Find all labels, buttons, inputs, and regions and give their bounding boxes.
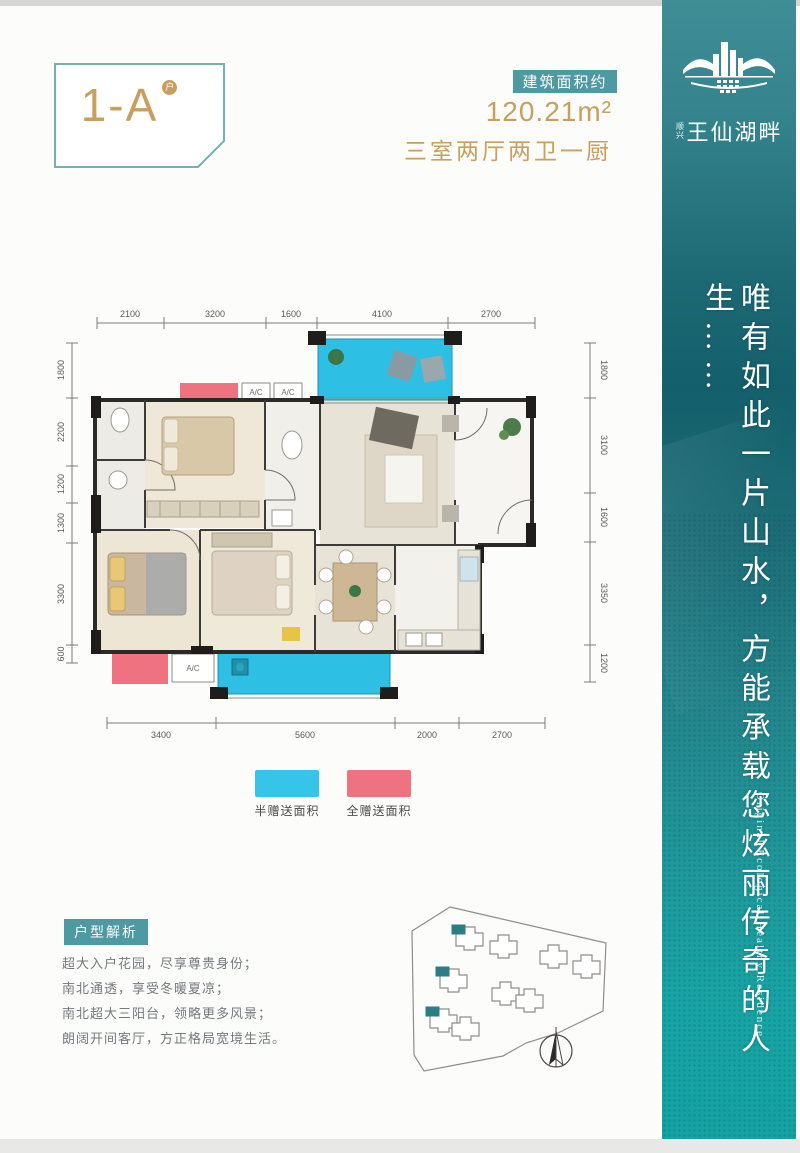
dim-label: 3100	[599, 435, 609, 455]
dim-label: 1600	[599, 507, 609, 527]
dim-label: 3400	[151, 730, 171, 740]
unit-label-text: 1-A	[81, 79, 159, 131]
floor-plan: 2100 3200 1600 4100 2700 3400 5600 2000 …	[50, 295, 615, 745]
dim-label: 1200	[599, 653, 609, 673]
dim-label: 3350	[599, 583, 609, 603]
dim-label: 1800	[599, 360, 609, 380]
dim-label: 2200	[56, 422, 66, 442]
brand-logo-icon	[677, 38, 781, 104]
area-value: 120.21m²	[312, 96, 612, 128]
dim-label: 3200	[205, 309, 225, 319]
sidebar-brand-panel: 顺兴 王仙湖畔 唯有如此一片山水，方能承载您炫丽传奇的人生…… Original…	[662, 0, 796, 1139]
site-plan	[408, 883, 623, 1088]
dim-label: 5600	[295, 730, 315, 740]
legend-swatch-pink	[347, 770, 411, 797]
dim-label: 2700	[492, 730, 512, 740]
north-compass-icon	[540, 1027, 572, 1067]
dim-label: 1300	[56, 513, 66, 533]
area-badge: 建筑面积约	[513, 70, 617, 93]
rooms-description: 三室两厅两卫一厨	[312, 132, 612, 166]
dim-label: 1600	[281, 309, 301, 319]
analysis-point: 朗阔开间客厅，方正格局宽境生活。	[62, 1026, 362, 1051]
dim-label: 2000	[417, 730, 437, 740]
brand-name: 王仙湖畔	[686, 115, 782, 147]
brand-prefix: 顺兴	[675, 122, 683, 140]
south-gift-area-full	[112, 652, 168, 684]
ac-label: A/C	[186, 664, 200, 673]
dim-label: 2100	[120, 309, 140, 319]
slogan-english-vertical: Original Ecological Healthy Residence	[754, 792, 766, 1122]
ac-label: A/C	[249, 388, 263, 397]
dim-label: 1800	[56, 360, 66, 380]
dim-label: 600	[56, 646, 66, 661]
analysis-points: 超大入户花园，尽享尊贵身份； 南北通透，享受冬暖夏凉； 南北超大三阳台，领略更多…	[62, 951, 362, 1051]
site-buildings	[426, 925, 600, 1040]
legend-swatch-cyan	[255, 770, 319, 797]
brand-block: 顺兴 王仙湖畔	[662, 38, 796, 147]
analysis-title-badge: 户型解析	[64, 919, 148, 945]
analysis-point: 南北通透，享受冬暖夏凉；	[62, 976, 362, 1001]
floorplan-poster: 1-A户 建筑面积约 120.21m² 三室两厅两卫一厨 2100 3200 1…	[0, 0, 800, 1153]
unit-mark-badge: 户	[162, 80, 177, 95]
ac-label: A/C	[281, 388, 295, 397]
dim-label: 3300	[56, 584, 66, 604]
dim-label: 1200	[56, 474, 66, 494]
analysis-point: 南北超大三阳台，领略更多风景；	[62, 1001, 362, 1026]
dim-label: 4100	[372, 309, 392, 319]
page-bottom-edge	[0, 1139, 800, 1153]
analysis-point: 超大入户花园，尽享尊贵身份；	[62, 951, 362, 976]
legend-item-full-gift: 全赠送面积	[324, 770, 434, 819]
unit-label: 1-A户	[54, 78, 204, 132]
legend-label: 全赠送面积	[324, 802, 434, 819]
north-gift-area-full	[180, 383, 238, 400]
dim-label: 2700	[481, 309, 501, 319]
